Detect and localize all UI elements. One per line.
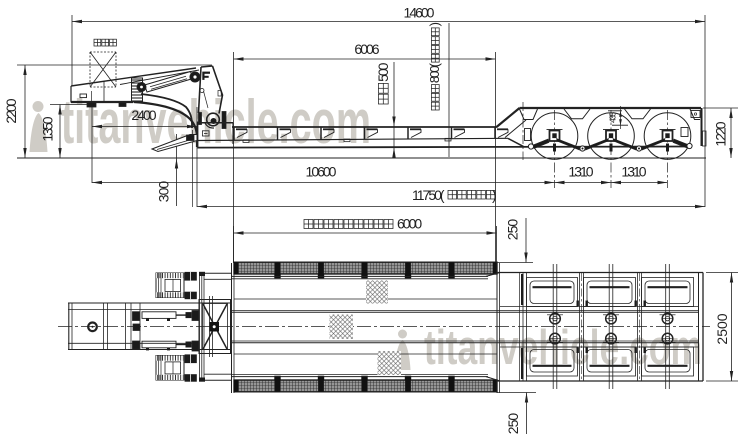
svg-text:250: 250 — [505, 413, 521, 434]
svg-text:300: 300 — [156, 181, 172, 203]
svg-text:2500: 2500 — [714, 313, 730, 344]
svg-text:11750(: 11750( — [412, 187, 445, 203]
svg-text:14600: 14600 — [404, 5, 435, 21]
svg-text:500: 500 — [375, 62, 391, 82]
svg-text:250: 250 — [505, 219, 521, 241]
svg-text:1310: 1310 — [568, 164, 593, 180]
svg-text:6000: 6000 — [397, 216, 422, 232]
svg-text:1220: 1220 — [713, 121, 729, 146]
svg-text:800(: 800( — [427, 62, 442, 83]
svg-text:1310: 1310 — [621, 164, 646, 180]
svg-text:6006: 6006 — [354, 41, 379, 57]
svg-text:10600: 10600 — [306, 164, 337, 180]
svg-text:2400: 2400 — [131, 107, 156, 123]
svg-text:1350: 1350 — [40, 116, 56, 141]
svg-text:2200: 2200 — [3, 98, 19, 123]
